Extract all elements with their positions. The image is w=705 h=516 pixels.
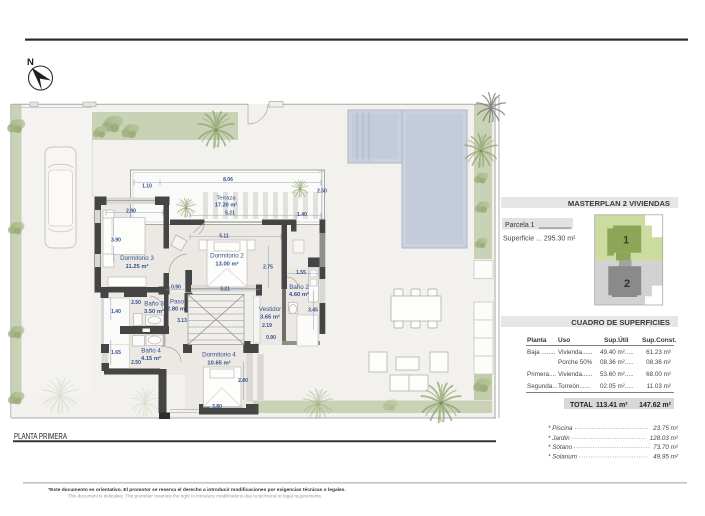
svg-text:68.00 m²: 68.00 m² xyxy=(646,371,671,378)
svg-text:1.40: 1.40 xyxy=(111,309,121,315)
svg-text:N: N xyxy=(27,57,34,68)
svg-text:08.36 m².....: 08.36 m²..... xyxy=(600,359,634,366)
svg-text:2.75: 2.75 xyxy=(263,265,273,271)
svg-text:3.50 m²: 3.50 m² xyxy=(144,308,164,315)
svg-text:Dormitorio 4: Dormitorio 4 xyxy=(202,352,236,359)
svg-text:128.03 m²: 128.03 m² xyxy=(650,435,679,442)
svg-text:4.60 m²: 4.60 m² xyxy=(289,291,309,298)
svg-text:Baño 3: Baño 3 xyxy=(144,301,164,308)
svg-text:2.19: 2.19 xyxy=(262,323,272,329)
svg-text:3.21: 3.21 xyxy=(220,287,230,293)
svg-text:Uso: Uso xyxy=(558,337,570,344)
svg-text:10.65 m²: 10.65 m² xyxy=(207,360,230,367)
svg-text:* Solarium: * Solarium xyxy=(548,454,577,461)
svg-text:4.15 m²: 4.15 m² xyxy=(141,355,161,362)
svg-text:5.21: 5.21 xyxy=(225,211,235,217)
svg-text:2.80: 2.80 xyxy=(238,378,248,384)
svg-text:0.90: 0.90 xyxy=(266,335,276,341)
svg-text:73.70 m²: 73.70 m² xyxy=(653,444,679,451)
svg-text:Primera....: Primera.... xyxy=(527,371,556,378)
svg-text:23.75 m²: 23.75 m² xyxy=(652,425,679,432)
svg-text:61.23 m²: 61.23 m² xyxy=(646,349,671,356)
svg-text:1.65: 1.65 xyxy=(111,350,121,356)
svg-text:02.05 m².....: 02.05 m²..... xyxy=(600,383,634,390)
svg-text:TOTAL: TOTAL xyxy=(570,402,593,409)
svg-text:11.25 m²: 11.25 m² xyxy=(126,263,149,270)
svg-text:49.40 m².....: 49.40 m²..... xyxy=(600,349,634,356)
svg-text:PLANTA PRIMERA: PLANTA PRIMERA xyxy=(14,432,68,441)
svg-text:Baño 2: Baño 2 xyxy=(289,284,309,291)
svg-text:147.62 m²: 147.62 m² xyxy=(639,402,672,409)
svg-text:* Sótano: * Sótano xyxy=(548,444,573,451)
svg-text:Porche 50%: Porche 50% xyxy=(558,359,593,366)
svg-text:Sup.Útil: Sup.Útil xyxy=(604,335,629,344)
svg-text:113.41 m²: 113.41 m² xyxy=(596,402,628,409)
svg-text:This document is indicative. T: This document is indicative. The promote… xyxy=(68,494,322,499)
svg-text:Sup.Const.: Sup.Const. xyxy=(642,337,676,344)
svg-text:* Piscina: * Piscina xyxy=(548,425,573,432)
svg-text:2.80 m²: 2.80 m² xyxy=(167,306,187,313)
svg-text:3.65 m²: 3.65 m² xyxy=(260,314,280,321)
svg-text:Segunda...: Segunda... xyxy=(527,383,558,390)
svg-text:1.40: 1.40 xyxy=(297,212,307,218)
svg-text:Planta: Planta xyxy=(527,337,547,344)
svg-text:Dormitorio 3: Dormitorio 3 xyxy=(120,255,154,262)
svg-text:1: 1 xyxy=(623,235,629,247)
svg-text:11.03 m²: 11.03 m² xyxy=(647,383,671,390)
svg-text:2.50: 2.50 xyxy=(317,189,327,195)
svg-text:Baja ........: Baja ........ xyxy=(527,349,556,356)
svg-text:* Jardín: * Jardín xyxy=(548,435,570,442)
svg-text:3.90: 3.90 xyxy=(111,238,121,244)
svg-text:3.80: 3.80 xyxy=(212,404,222,410)
svg-text:MASTERPLAN 2 VIVIENDAS: MASTERPLAN 2 VIVIENDAS xyxy=(568,199,670,208)
svg-text:CUADRO DE SUPERFICIES: CUADRO DE SUPERFICIES xyxy=(571,318,670,327)
svg-text:Superficie ... 295.30 m²: Superficie ... 295.30 m² xyxy=(503,236,576,243)
svg-text:2.50: 2.50 xyxy=(131,360,141,366)
svg-text:Terraza: Terraza xyxy=(216,196,236,202)
svg-text:53.60 m².....: 53.60 m²..... xyxy=(600,371,634,378)
svg-text:1.10: 1.10 xyxy=(142,184,152,190)
svg-text:Vivienda......: Vivienda...... xyxy=(558,349,593,356)
svg-text:2: 2 xyxy=(624,278,630,290)
svg-text:Dormitorio 2: Dormitorio 2 xyxy=(210,253,244,260)
svg-text:3.13: 3.13 xyxy=(177,318,187,324)
svg-text:Vestidor: Vestidor xyxy=(259,306,281,313)
svg-text:8.06: 8.06 xyxy=(223,177,233,183)
svg-text:08.36 m²: 08.36 m² xyxy=(646,359,671,366)
svg-text:Parcela 1: Parcela 1 xyxy=(505,222,535,229)
svg-text:3.45: 3.45 xyxy=(308,308,318,314)
svg-text:49.95 m²: 49.95 m² xyxy=(653,454,679,461)
svg-text:5.11: 5.11 xyxy=(219,234,229,240)
svg-text:2.50: 2.50 xyxy=(131,300,141,306)
svg-text:Vivienda......: Vivienda...... xyxy=(558,371,593,378)
svg-text:Baño 4: Baño 4 xyxy=(141,348,161,355)
svg-text:17.20 m²: 17.20 m² xyxy=(215,202,238,209)
svg-text:13.00 m²: 13.00 m² xyxy=(215,261,238,268)
svg-text:*Este documento es orientativo: *Este documento es orientativo. El promo… xyxy=(48,487,346,493)
svg-text:Paso: Paso xyxy=(170,299,185,306)
svg-text:Torreón......: Torreón...... xyxy=(558,383,590,390)
svg-text:0.90: 0.90 xyxy=(171,285,181,291)
svg-text:2.90: 2.90 xyxy=(126,209,136,215)
svg-text:1.55: 1.55 xyxy=(296,270,306,276)
